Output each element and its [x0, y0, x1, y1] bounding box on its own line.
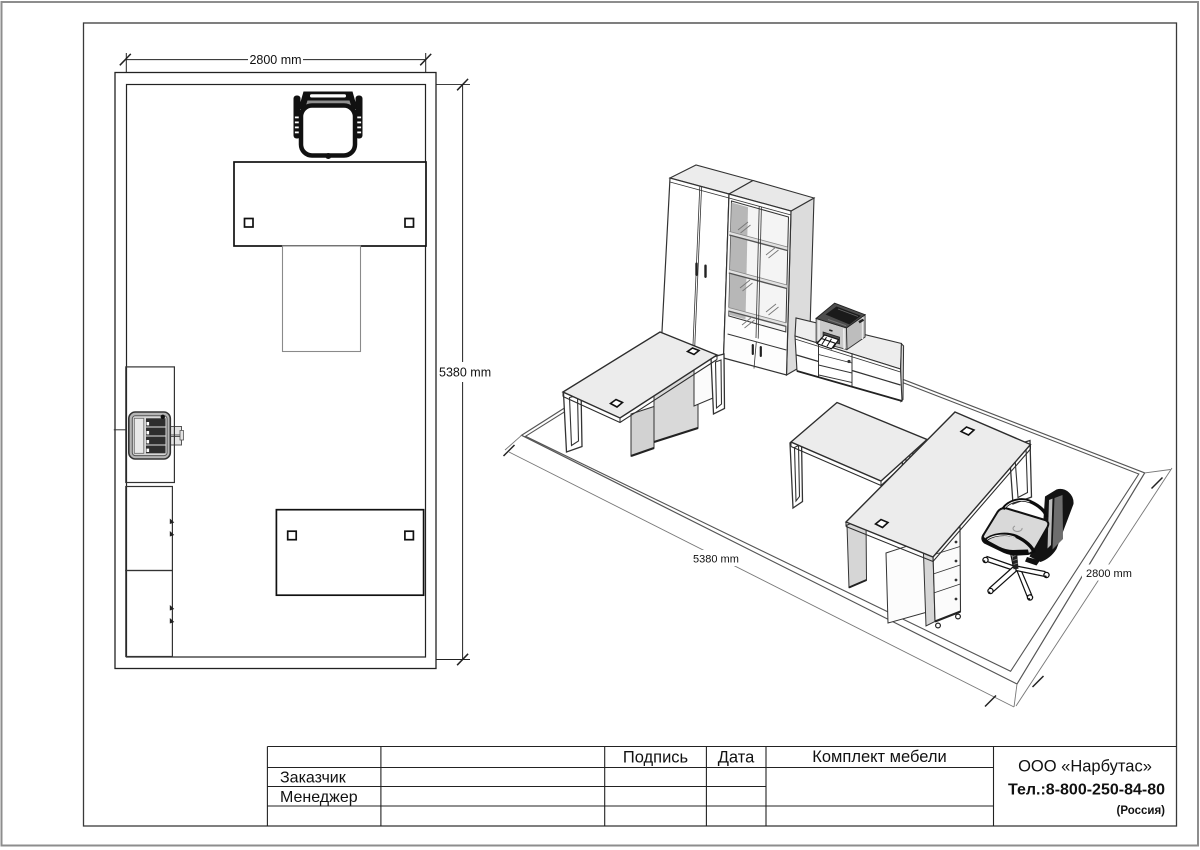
svg-text:2800 mm: 2800 mm: [249, 53, 301, 67]
svg-text:ООО «Нарбутас»: ООО «Нарбутас»: [1018, 758, 1152, 776]
svg-text:Заказчик: Заказчик: [280, 770, 347, 787]
svg-text:Тел.:8-800-250-84-80: Тел.:8-800-250-84-80: [1008, 782, 1165, 799]
svg-text:Менеджер: Менеджер: [280, 789, 358, 806]
svg-text:Подпись: Подпись: [623, 749, 688, 767]
svg-text:5380 mm: 5380 mm: [439, 366, 491, 380]
svg-text:5380 mm: 5380 mm: [693, 554, 739, 566]
svg-text:2800 mm: 2800 mm: [1086, 568, 1132, 580]
svg-text:(Россия): (Россия): [1117, 805, 1166, 817]
svg-text:Дата: Дата: [718, 749, 755, 767]
svg-text:Комплект мебели: Комплект мебели: [812, 748, 947, 766]
